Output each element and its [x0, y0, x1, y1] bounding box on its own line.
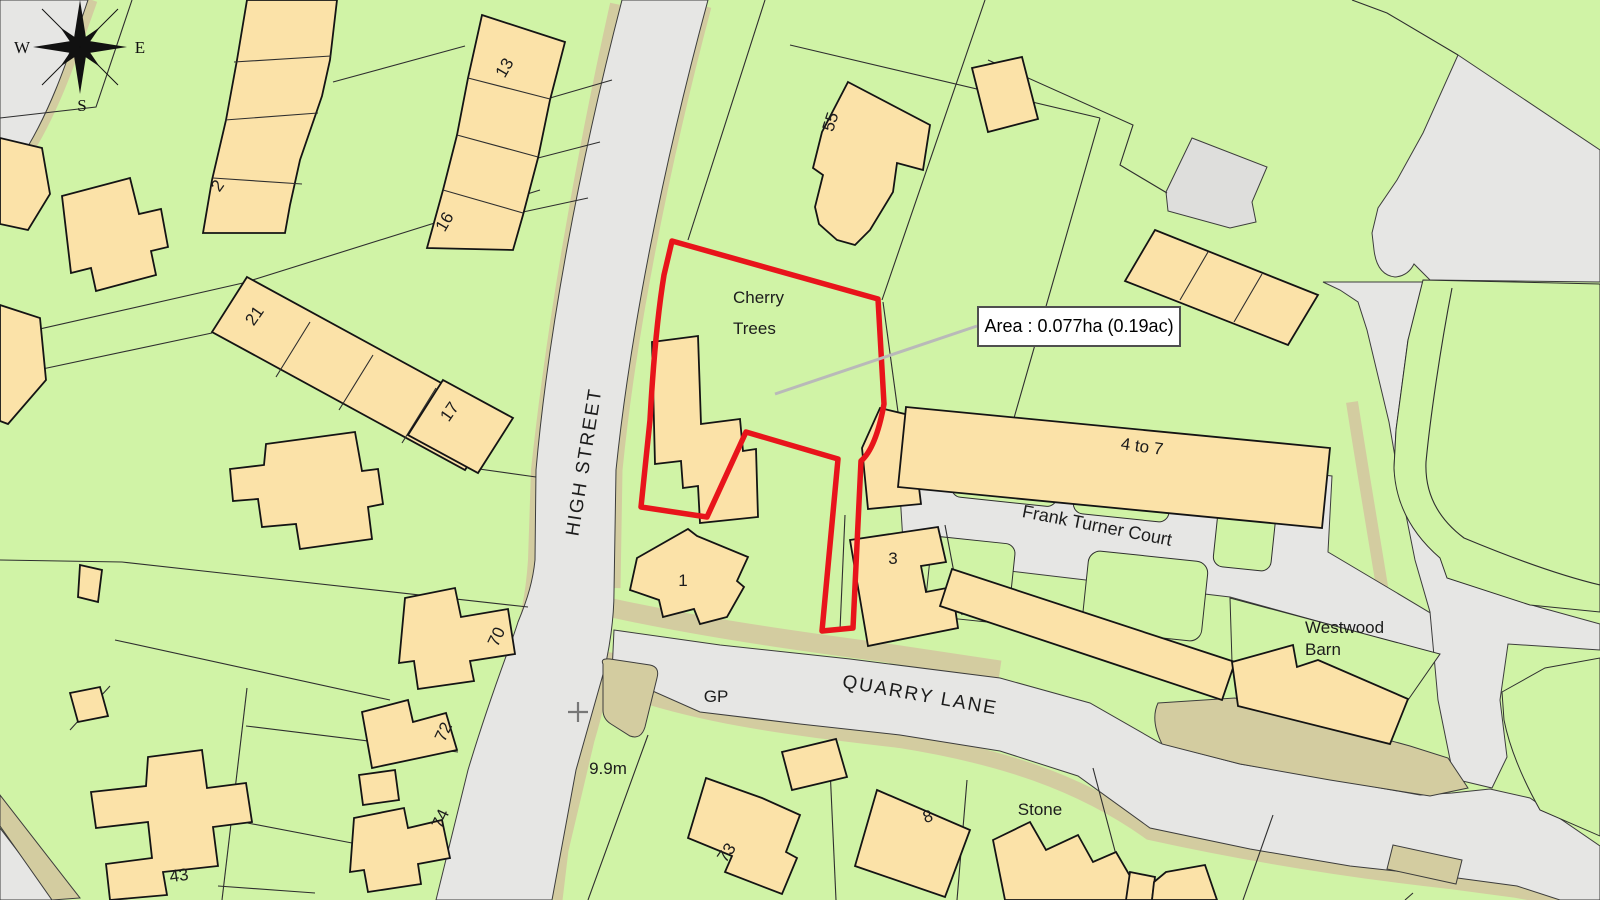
compass-west-label: W	[14, 38, 31, 57]
spot-height-label: 9.9m	[589, 759, 627, 779]
map-canvas: W E S	[0, 0, 1600, 900]
house-number-3: 3	[888, 549, 897, 569]
outbuilding	[70, 687, 108, 722]
house-number-43: 43	[168, 865, 190, 887]
house-number-1: 1	[678, 571, 687, 591]
outbuilding	[359, 770, 399, 805]
westwood-barn-label-line1: Westwood	[1305, 618, 1384, 638]
site-plan-map: W E S Cherry Trees HIGH STREET QUARRY LA…	[0, 0, 1600, 900]
westwood-barn-label-line2: Barn	[1305, 640, 1341, 660]
cherry-trees-label-line1: Cherry	[733, 288, 784, 308]
stone-label: Stone	[1018, 800, 1062, 820]
area-callout-text: Area : 0.077ha (0.19ac)	[984, 316, 1173, 337]
outbuilding	[78, 565, 102, 602]
gp-label: GP	[704, 687, 729, 707]
cherry-trees-label-line2: Trees	[733, 319, 776, 339]
compass-east-label: E	[135, 38, 145, 57]
outbuilding	[1126, 872, 1155, 900]
area-callout-box: Area : 0.077ha (0.19ac)	[977, 306, 1181, 347]
compass-south-label: S	[77, 96, 86, 115]
